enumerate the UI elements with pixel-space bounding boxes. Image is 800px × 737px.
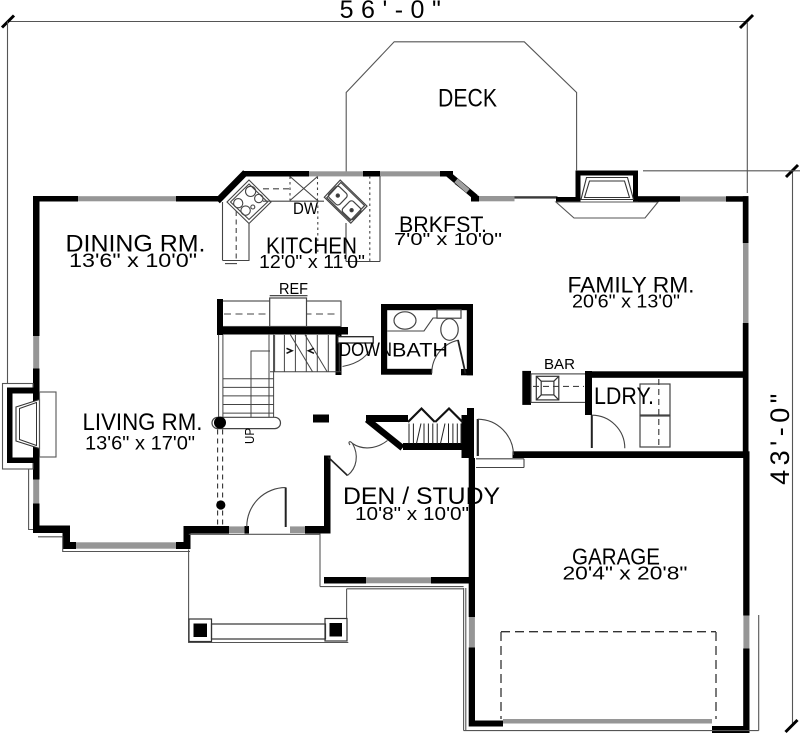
svg-text:UP: UP [243,428,257,444]
svg-text:12'0" x 11'0": 12'0" x 11'0" [259,252,365,272]
svg-text:BATH: BATH [392,340,448,362]
svg-text:LDRY.: LDRY. [594,383,654,410]
svg-text:13'6" x 17'0": 13'6" x 17'0" [85,434,195,455]
svg-text:20'4" x 20'8": 20'4" x 20'8" [563,563,688,584]
svg-text:LIVING RM.: LIVING RM. [83,409,203,436]
svg-text:43'-0": 43'-0" [765,389,795,485]
svg-text:56'-0": 56'-0" [340,0,449,24]
svg-text:DECK: DECK [438,85,497,113]
svg-text:DW: DW [293,200,318,218]
svg-text:7'0" x 10'0": 7'0" x 10'0" [394,229,502,249]
svg-text:20'6" x 13'0": 20'6" x 13'0" [572,292,680,312]
svg-text:10'8" x 10'0": 10'8" x 10'0" [355,503,469,524]
svg-text:13'6" x 10'0": 13'6" x 10'0" [69,250,197,272]
svg-text:BAR: BAR [544,357,575,373]
